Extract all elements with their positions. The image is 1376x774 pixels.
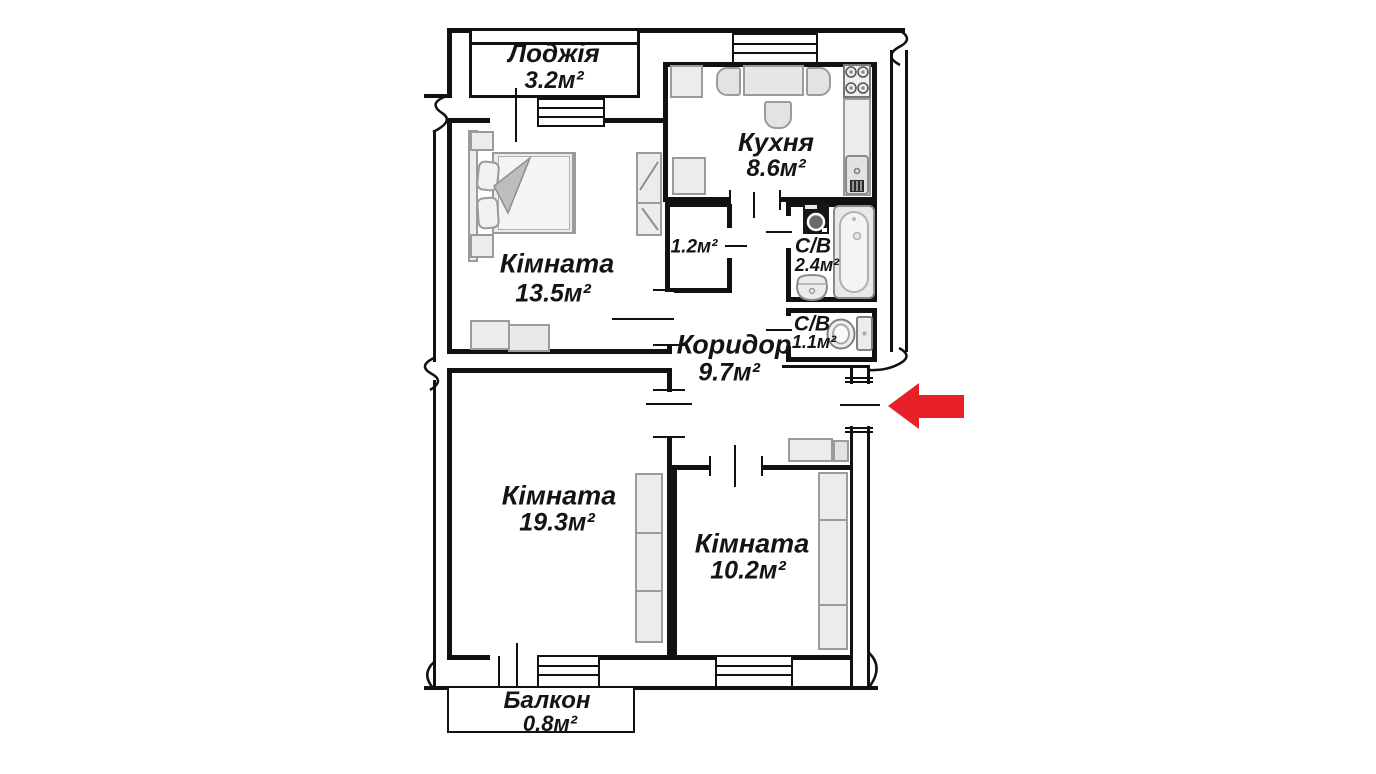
dresser [470, 320, 510, 350]
chair [806, 67, 831, 96]
door-leaf [725, 245, 747, 247]
chair [716, 67, 741, 96]
door-opening [730, 195, 780, 204]
fridge [670, 65, 703, 98]
kitchen-cabinet [672, 157, 706, 195]
jamb-tick [845, 377, 873, 379]
jamb-tick [845, 431, 873, 433]
room-label-bedroom-name: Кімната [500, 251, 614, 278]
washing-machine-icon [803, 203, 829, 234]
room-label-wc-area: 1.1м² [792, 333, 836, 351]
jamb-tick [845, 381, 873, 383]
door-leaf [753, 192, 755, 218]
room-label-kitchen-area: 8.6м² [746, 157, 805, 181]
bathtub-inner [839, 211, 869, 293]
jamb-tick [845, 427, 873, 429]
door-leaf [734, 445, 736, 487]
room-label-closet-area: 1.2м² [671, 238, 718, 257]
window [537, 655, 600, 688]
jamb-tick [761, 456, 763, 476]
wall-segment [433, 380, 436, 688]
wardrobe [636, 152, 662, 236]
wall-segment [890, 50, 908, 352]
kitchen-sink [845, 155, 869, 195]
wardrobe [818, 472, 848, 650]
room-label-kitchen-name: Кухня [738, 129, 814, 155]
room-label-living-area: 19.3м² [519, 511, 594, 536]
hall-cabinet [833, 440, 849, 462]
jamb-tick [653, 436, 685, 438]
door-opening [710, 463, 763, 472]
dresser [508, 324, 550, 352]
pillow [475, 160, 500, 192]
nightstand [470, 234, 494, 258]
bed-blanket [498, 156, 570, 230]
room-label-loggia-name: Лоджія [508, 40, 600, 66]
room-label-balcony-name: Балкон [504, 689, 591, 713]
door-opening [725, 228, 734, 258]
window [537, 98, 605, 127]
door-opening [490, 116, 537, 125]
room-label-second-area: 10.2м² [710, 559, 785, 584]
room-label-bedroom-area: 13.5м² [515, 282, 590, 307]
nightstand [470, 131, 494, 151]
hall-cabinet [788, 438, 833, 462]
wardrobe [635, 473, 663, 643]
door-leaf [515, 88, 517, 142]
window [715, 655, 793, 688]
room-label-living-name: Кімната [502, 483, 616, 510]
jamb-tick [709, 456, 711, 476]
door-leaf [516, 643, 518, 688]
jamb-tick [779, 190, 781, 210]
chair [764, 101, 792, 129]
window [732, 33, 818, 64]
wall-segment [447, 33, 452, 98]
floor-plan: Лоджія 3.2м² Кухня 8.6м² Кімната 13.5м² … [0, 0, 1376, 774]
jamb-tick [653, 389, 685, 391]
room-label-corridor-name: Коридор [677, 332, 792, 359]
entrance-arrow-icon [888, 383, 964, 429]
stove [843, 64, 871, 98]
room-label-second-name: Кімната [695, 531, 809, 558]
jamb-tick [498, 656, 500, 687]
room-label-loggia-area: 3.2м² [524, 69, 583, 93]
door-leaf [646, 403, 692, 405]
pillow [476, 196, 500, 229]
kitchen-table [743, 65, 804, 96]
door-leaf [766, 231, 792, 233]
room-label-bathroom-name: С/В [795, 236, 831, 257]
room-label-balcony-area: 0.8м² [523, 713, 577, 735]
wall-segment [424, 94, 452, 98]
door-leaf [612, 318, 674, 320]
door-opening [665, 392, 674, 437]
jamb-tick [729, 190, 731, 210]
room-label-corridor-area: 9.7м² [698, 361, 760, 386]
jamb-tick [653, 289, 685, 291]
wall-segment [433, 130, 436, 362]
room-label-bathroom-area: 2.4м² [795, 256, 839, 274]
entrance-door-leaf [840, 404, 880, 406]
